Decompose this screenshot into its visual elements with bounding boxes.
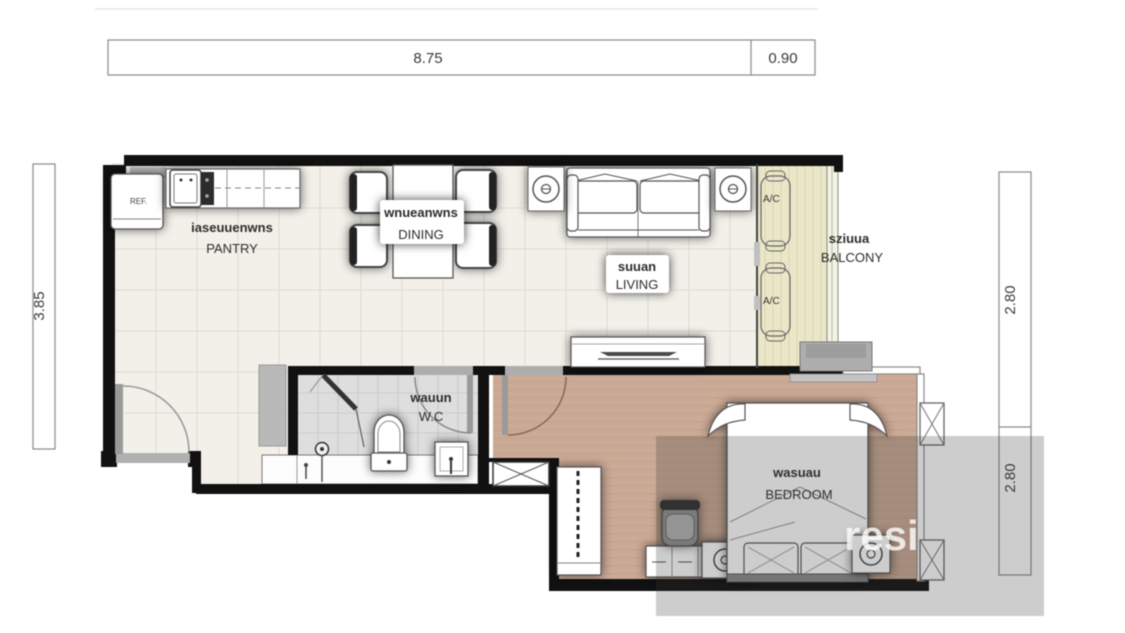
svg-text:wauun: wauun: [409, 390, 451, 405]
svg-text:LIVING: LIVING: [616, 277, 659, 292]
svg-text:PANTRY: PANTRY: [206, 241, 258, 256]
svg-text:REF.: REF.: [130, 197, 147, 206]
svg-text:W.C: W.C: [419, 409, 444, 424]
svg-text:wnueanwns: wnueanwns: [383, 205, 458, 220]
svg-text:0.90: 0.90: [768, 50, 797, 67]
svg-text:suuan: suuan: [618, 259, 656, 274]
svg-text:resi: resi: [844, 512, 919, 559]
svg-text:A/C: A/C: [763, 296, 780, 307]
svg-text:A/C: A/C: [763, 194, 780, 205]
svg-text:iaseuuenwns: iaseuuenwns: [191, 220, 273, 235]
svg-text:3.85: 3.85: [31, 291, 48, 320]
svg-text:sziuua: sziuua: [829, 231, 870, 246]
svg-text:2.80: 2.80: [1002, 285, 1019, 314]
svg-text:BALCONY: BALCONY: [821, 250, 883, 265]
svg-text:DINING: DINING: [398, 227, 444, 242]
svg-text:8.75: 8.75: [413, 50, 442, 67]
